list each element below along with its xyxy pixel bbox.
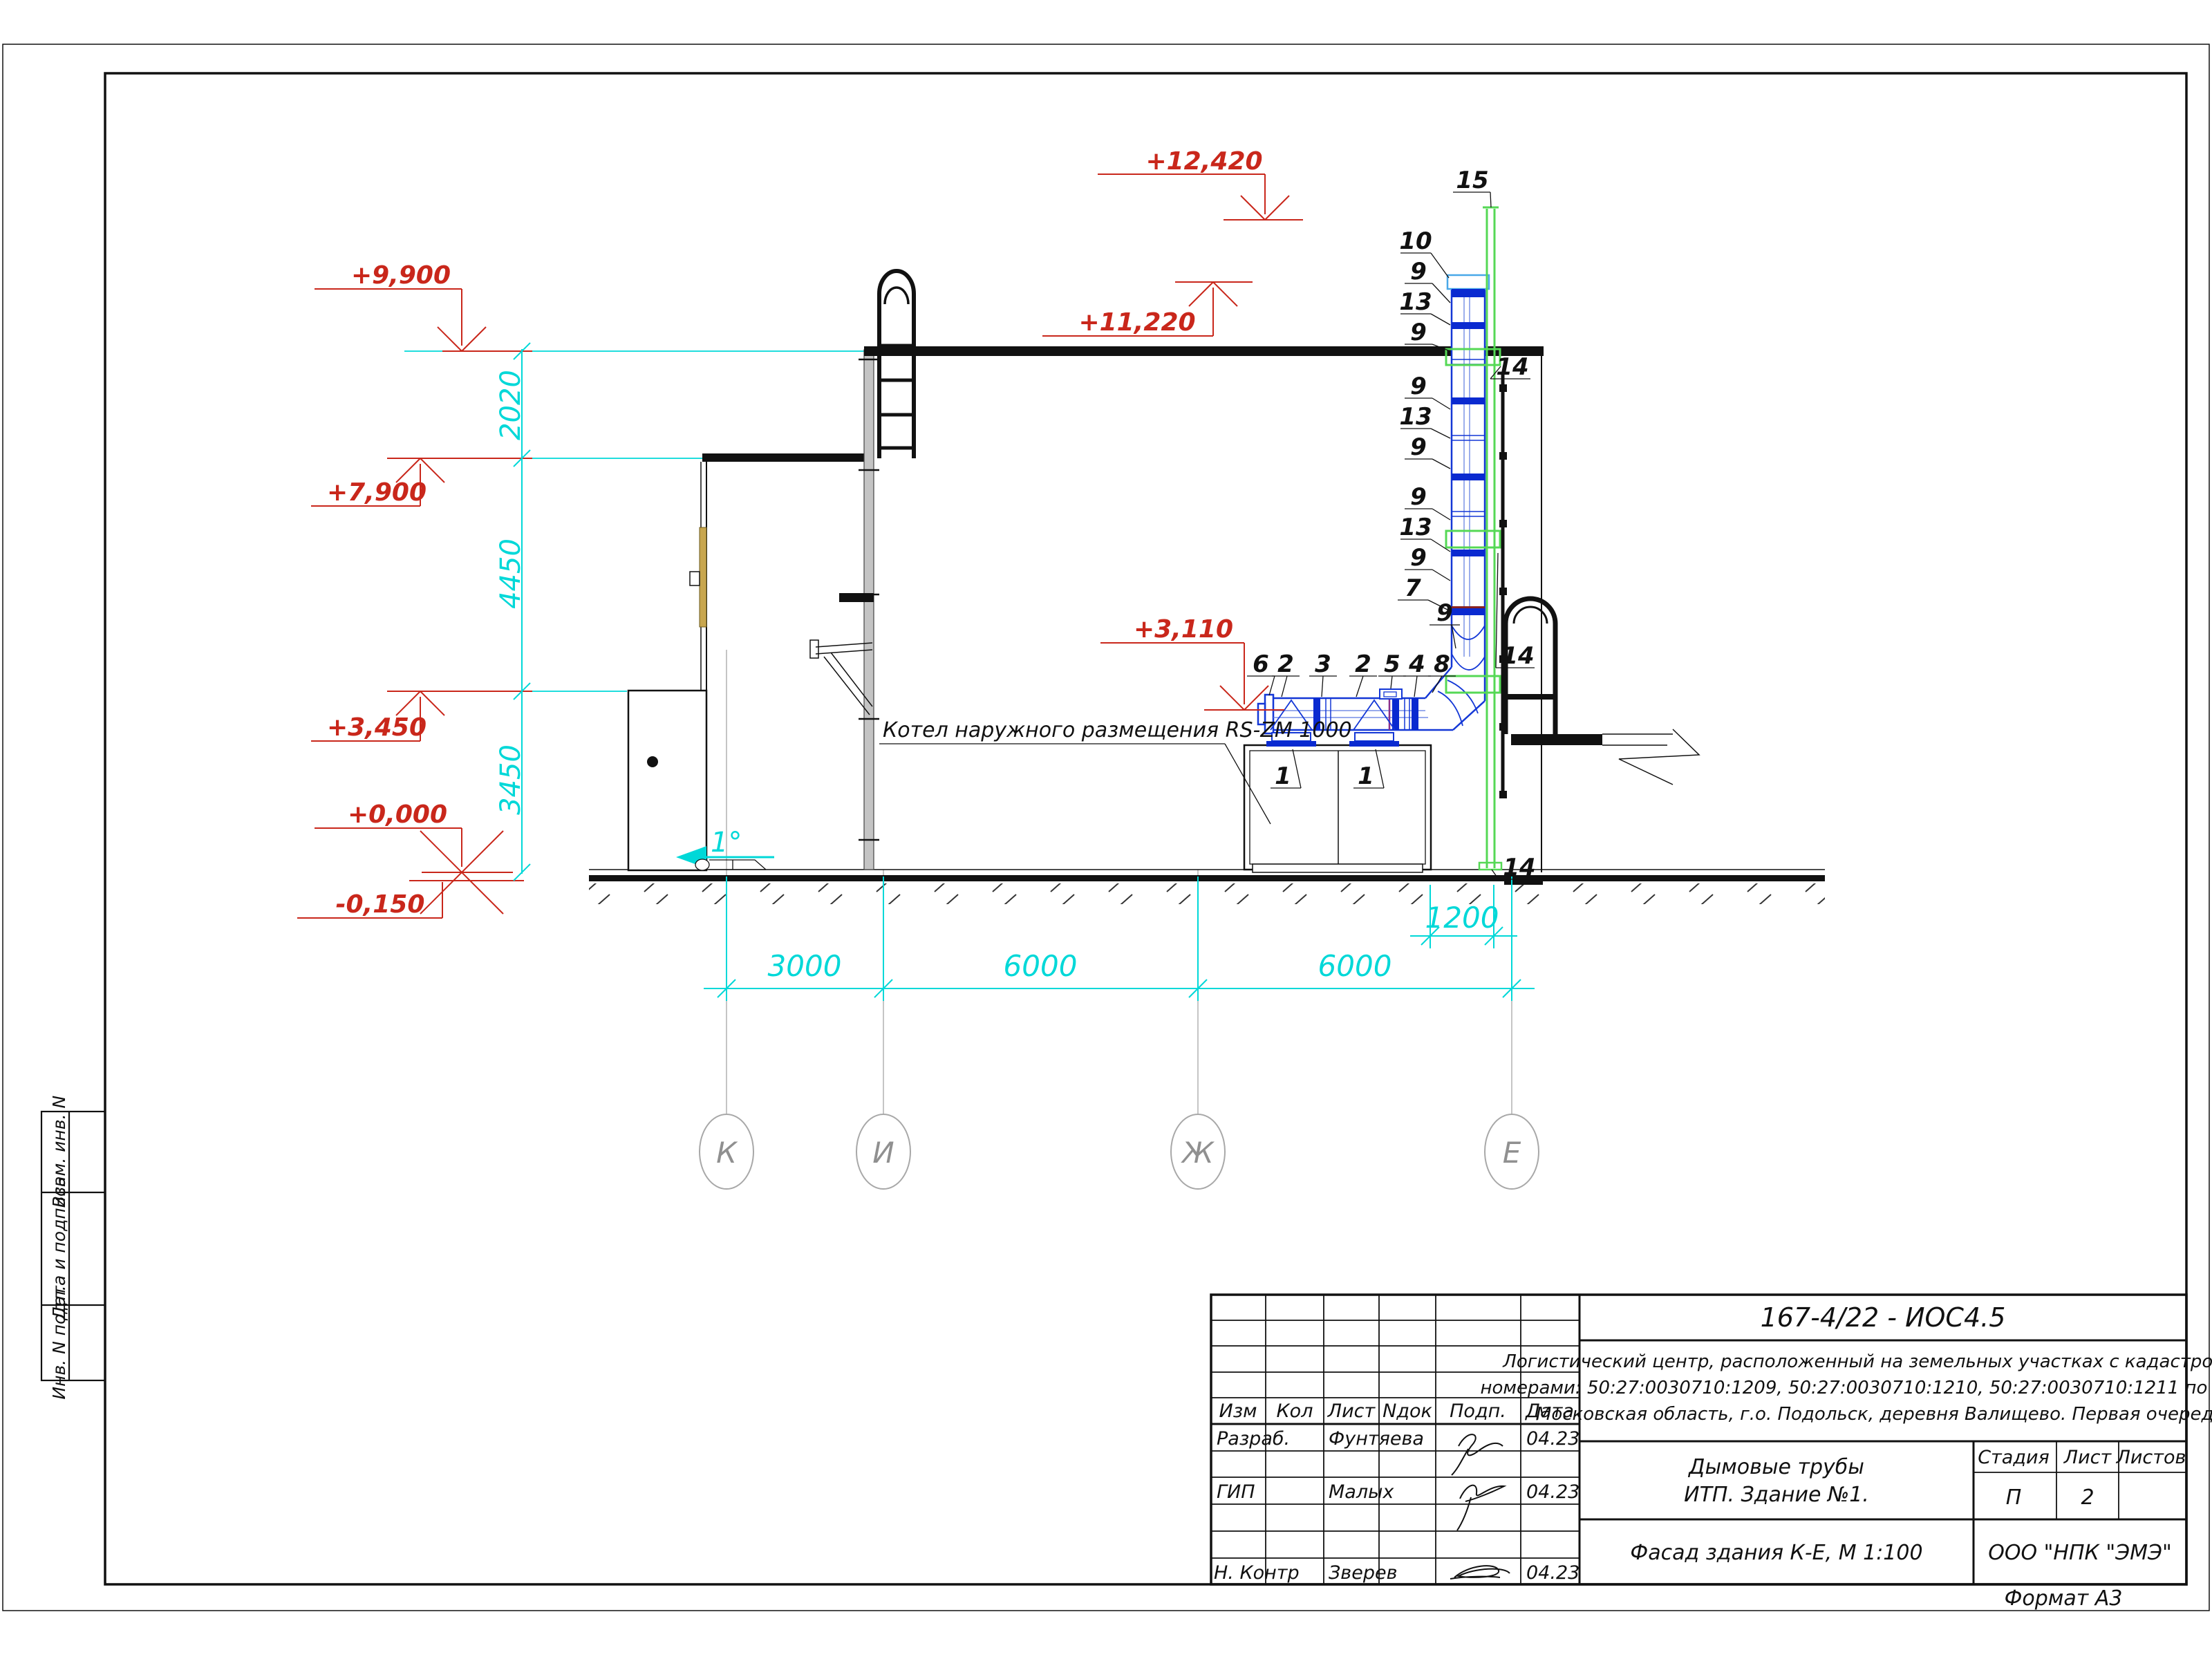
part-2b: 2 — [1355, 650, 1371, 678]
grid-label-k: К — [716, 1136, 738, 1170]
left-building — [628, 453, 865, 870]
grid-label-e: Е — [1503, 1136, 1521, 1170]
tb-view-title: Фасад здания К-Е, М 1:100 — [1630, 1541, 1922, 1565]
tb-nkontr-role: Н. Контр — [1214, 1562, 1300, 1584]
part-9b: 9 — [1410, 319, 1427, 346]
tb-sheet-value: 2 — [2081, 1485, 2094, 1510]
elev-0000: +0,000 — [348, 800, 447, 829]
elev-3450: +3,450 — [327, 713, 427, 742]
tb-desc-1: Логистический центр, расположенный на зе… — [1502, 1351, 2212, 1372]
tb-doc-number: 167-4/22 - ИОС4.5 — [1761, 1302, 2006, 1333]
tb-razrab-name: Фунтяева — [1329, 1428, 1424, 1450]
tb-title-1: Дымовые трубы — [1687, 1455, 1864, 1479]
grid-bubbles — [700, 1114, 1539, 1189]
level-lines-cyan — [404, 351, 864, 691]
part-4: 4 — [1408, 650, 1425, 678]
wall-panel — [700, 527, 706, 627]
tb-gip-role: ГИП — [1217, 1481, 1255, 1503]
part-9g: 9 — [1436, 599, 1453, 627]
grid-label-i: И — [872, 1136, 894, 1170]
ground — [589, 870, 1825, 904]
roof-ladder — [879, 271, 914, 458]
part-6: 6 — [1253, 650, 1269, 678]
tb-sheet-label: Лист — [2063, 1447, 2112, 1468]
middle-wall — [810, 350, 879, 870]
part-7: 7 — [1405, 574, 1421, 602]
tb-col-podp: Подп. — [1450, 1400, 1506, 1422]
wall-bracket-small — [839, 593, 874, 602]
tb-razrab-date: 04.23 — [1526, 1428, 1580, 1450]
dim-6000b: 6000 — [1318, 949, 1392, 983]
dim-1200: 1200 — [1425, 901, 1499, 935]
elev-7900: +7,900 — [327, 478, 427, 507]
tb-col-ndok: Nдок — [1382, 1400, 1432, 1422]
slope-label: 1° — [711, 827, 742, 859]
signatures — [1450, 1434, 1510, 1579]
part-14b: 14 — [1501, 642, 1534, 670]
tb-gip-name: Малых — [1329, 1481, 1394, 1503]
dim-3450v: 3450 — [495, 744, 527, 815]
part-2a: 2 — [1277, 650, 1294, 678]
tb-desc-2: номерами: 50:27:0030710:1209, 50:27:0030… — [1480, 1378, 2212, 1398]
tb-stage-label: Стадия — [1978, 1447, 2050, 1468]
part-13a: 13 — [1399, 288, 1432, 316]
tb-stage-value: П — [2006, 1485, 2022, 1510]
break-symbol — [1619, 729, 1699, 785]
tb-nkontr-date: 04.23 — [1526, 1562, 1580, 1584]
part-9c: 9 — [1410, 373, 1427, 400]
part-9e: 9 — [1410, 483, 1427, 511]
tb-desc-3: Московская область, г.о. Подольск, дерев… — [1536, 1404, 2212, 1425]
part-14a: 14 — [1496, 353, 1528, 381]
dim-2020: 2020 — [495, 370, 527, 440]
part-9f: 9 — [1410, 544, 1427, 572]
drawing-canvas: Взам. инв. N Дата и подпись Инв. N подл.… — [0, 0, 2212, 1659]
panel-box — [690, 572, 700, 585]
dim-4450: 4450 — [495, 538, 527, 609]
wall-console — [810, 640, 872, 715]
boiler-note-leader — [879, 744, 1271, 824]
tb-nkontr-name: Зверев — [1329, 1562, 1398, 1584]
elev-12420: +12,420 — [1145, 147, 1262, 176]
canopy-slab — [1511, 734, 1602, 745]
door — [628, 691, 706, 870]
boiler — [1244, 745, 1431, 872]
drain-channel — [695, 859, 766, 870]
part-10: 10 — [1399, 227, 1432, 255]
door-knob — [647, 756, 658, 767]
elev-11220: +11,220 — [1078, 308, 1195, 337]
elev-3110: +3,110 — [1134, 615, 1233, 644]
tb-col-kol: Кол — [1277, 1400, 1313, 1422]
part-8: 8 — [1434, 650, 1450, 678]
part-13c: 13 — [1399, 514, 1432, 541]
part-3: 3 — [1315, 650, 1331, 678]
part-15: 15 — [1456, 167, 1488, 194]
elev-m150: -0,150 — [336, 890, 425, 919]
boiler-note: Котел наружного размещения RS-ZM 1000 — [883, 718, 1352, 742]
tb-col-list: Лист — [1327, 1400, 1376, 1422]
stamp-inv-podl: Инв. N подл. — [49, 1285, 69, 1399]
chimney-wall-rail — [1499, 373, 1507, 798]
dim-3000: 3000 — [768, 949, 842, 983]
elev-9900: +9,900 — [351, 261, 451, 290]
tb-col-izm: Изм — [1219, 1400, 1257, 1422]
grid-label-zh: Ж — [1180, 1136, 1215, 1170]
part-9a: 9 — [1410, 258, 1427, 285]
drawing-sheet: Взам. инв. N Дата и подпись Инв. N подл.… — [0, 0, 2212, 1659]
part-1b: 1 — [1358, 762, 1374, 790]
tb-company: ООО "НПК "ЭМЭ" — [1988, 1541, 2172, 1565]
part-9d: 9 — [1410, 433, 1427, 461]
part-1a: 1 — [1275, 762, 1291, 790]
tb-title-2: ИТП. Здание №1. — [1684, 1483, 1869, 1507]
part-13b: 13 — [1399, 403, 1432, 431]
part-5: 5 — [1384, 650, 1400, 678]
dim-6000a: 6000 — [1004, 949, 1078, 983]
tb-razrab-role: Разраб. — [1217, 1428, 1290, 1450]
damper — [1380, 689, 1402, 699]
ground-hatch — [589, 883, 1825, 904]
part-14c: 14 — [1503, 854, 1535, 881]
right-lower-building — [1430, 729, 1699, 885]
chimney-cap — [1447, 275, 1489, 289]
roof-7900 — [702, 453, 865, 462]
format-note: Формат А3 — [2005, 1586, 2123, 1611]
tb-gip-date: 04.23 — [1526, 1481, 1580, 1503]
tb-sheets-label: Листов — [2116, 1447, 2186, 1468]
